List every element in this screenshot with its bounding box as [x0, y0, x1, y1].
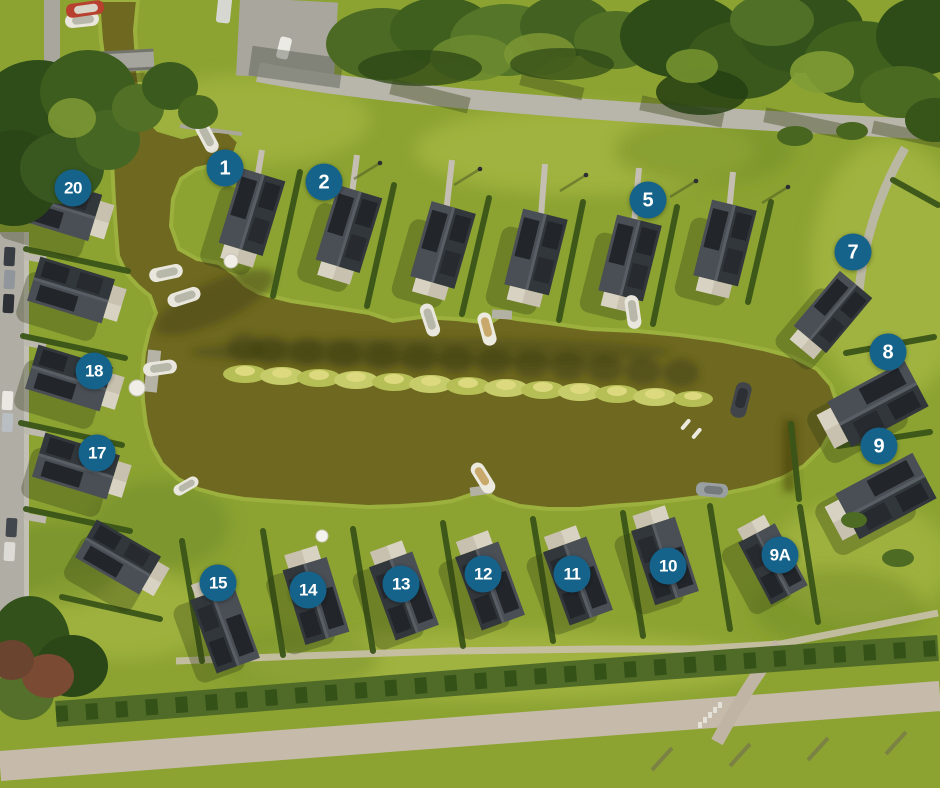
- lot-number-marker[interactable]: 1: [207, 150, 244, 187]
- lot-number-marker[interactable]: 5: [630, 182, 667, 219]
- lot-number-marker[interactable]: 7: [835, 234, 872, 271]
- lot-number-marker[interactable]: 18: [76, 353, 113, 390]
- lot-number-marker[interactable]: 14: [290, 572, 327, 609]
- marker-label: 10: [659, 558, 677, 575]
- marker-label: 1: [219, 158, 230, 178]
- marker-label: 12: [474, 566, 492, 583]
- lot-number-marker[interactable]: 11: [554, 556, 591, 593]
- marker-label: 9: [873, 436, 884, 456]
- lot-number-marker[interactable]: 8: [870, 334, 907, 371]
- marker-label: 5: [642, 190, 653, 210]
- marker-label: 9A: [770, 547, 791, 564]
- marker-label: 18: [85, 363, 103, 380]
- site-map: 1 2 5 7 8 9 9A 10 11 12 13 14 15 17 18 2…: [0, 0, 940, 788]
- lot-number-marker[interactable]: 9A: [762, 537, 799, 574]
- marker-label: 13: [392, 576, 410, 593]
- marker-label: 15: [209, 575, 227, 592]
- marker-layer: 1 2 5 7 8 9 9A 10 11 12 13 14 15 17 18 2…: [0, 0, 940, 788]
- marker-label: 20: [64, 180, 82, 197]
- marker-label: 14: [299, 582, 317, 599]
- marker-label: 17: [88, 445, 106, 462]
- marker-label: 8: [882, 342, 893, 362]
- lot-number-marker[interactable]: 10: [650, 548, 687, 585]
- marker-label: 7: [847, 242, 858, 262]
- lot-number-marker[interactable]: 12: [465, 556, 502, 593]
- lot-number-marker[interactable]: 13: [383, 566, 420, 603]
- lot-number-marker[interactable]: 9: [861, 428, 898, 465]
- marker-label: 11: [564, 566, 581, 583]
- lot-number-marker[interactable]: 2: [306, 164, 343, 201]
- lot-number-marker[interactable]: 15: [200, 565, 237, 602]
- lot-number-marker[interactable]: 20: [55, 170, 92, 207]
- marker-label: 2: [318, 172, 329, 192]
- lot-number-marker[interactable]: 17: [79, 435, 116, 472]
